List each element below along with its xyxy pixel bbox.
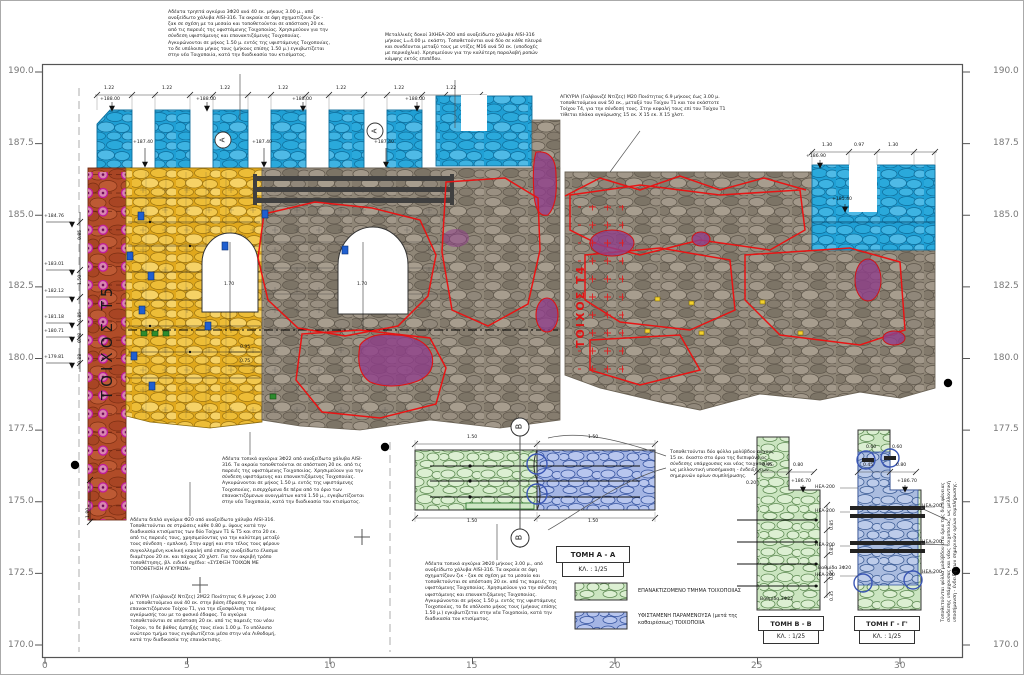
detail-marker-a-1: A xyxy=(218,138,226,143)
section-a-scale: ΚΛ. : 1/25 xyxy=(562,562,624,577)
section-b-scale: ΚΛ. : 1/25 xyxy=(763,630,819,644)
section-c-scale: ΚΛ. : 1/25 xyxy=(859,630,915,644)
section-a-title: ΤΟΜΗ A - A xyxy=(556,546,630,563)
section-c-title: ΤΟΜΗ Γ - Γ' xyxy=(854,616,920,631)
drawing-sheet: 190.0187.5185.0182.5180.0177.5175.0172.5… xyxy=(0,0,1024,675)
drawing-graphics xyxy=(0,0,1024,675)
wall-t5-label: ΤΟΙΧΟΣ Τ5 xyxy=(98,284,116,400)
section-marker-b-bottom: B xyxy=(514,535,523,541)
section-marker-b-top: B xyxy=(514,424,523,430)
legend-existing-masonry: ΥΦΙΣΤΑΜΕΝΗ ΠΑΡΑΜΕΝΟΥΣΑ (μετά της καθαιρέ… xyxy=(638,613,763,627)
legend-new-masonry: ΕΠΑΝΑΚΤΙΖΟΜΕΝΟ ΤΜΗΜΑ ΤΟΙΧΟΠΟΙΙΑΣ xyxy=(638,588,763,595)
detail-marker-a-2: A xyxy=(370,129,378,134)
section-b-title: ΤΟΜΗ B - B xyxy=(758,616,824,631)
wall-t4-label: ΤΟΙΧΟΣ Τ4 xyxy=(574,265,587,348)
